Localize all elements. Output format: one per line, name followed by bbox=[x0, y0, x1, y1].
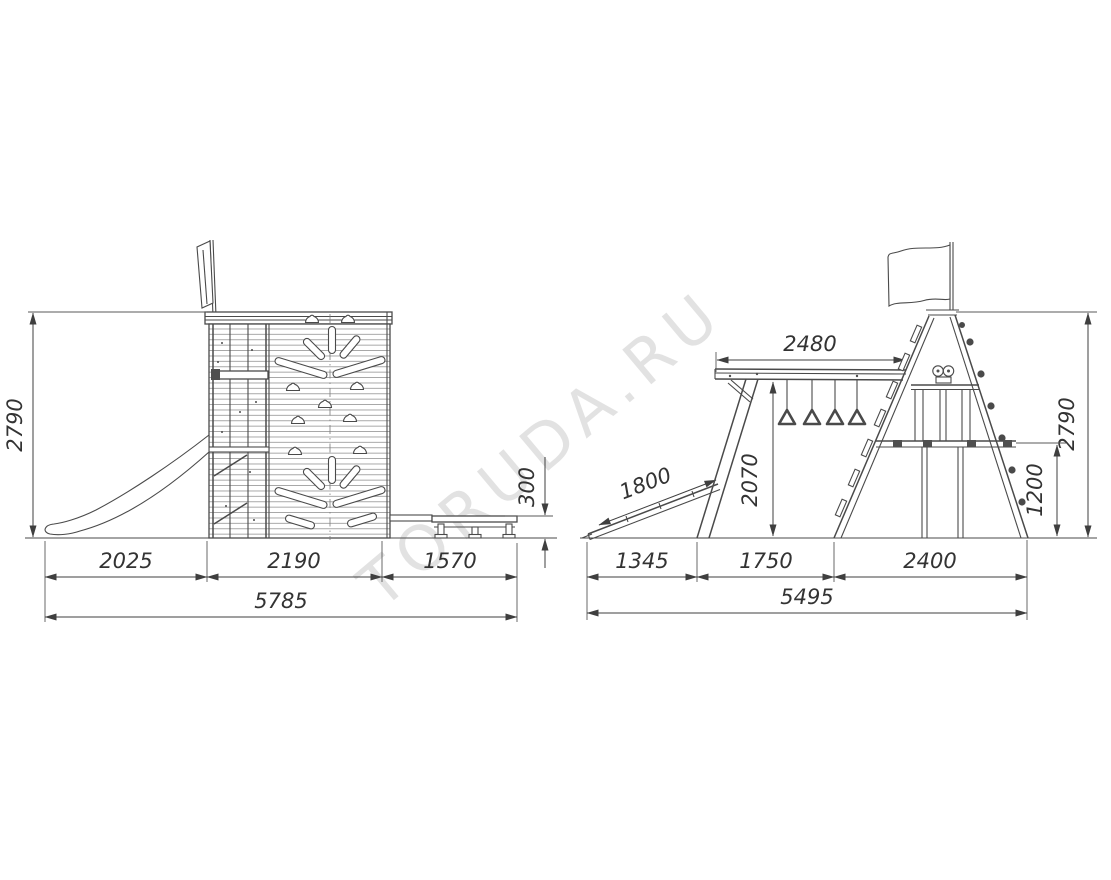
dim-front-bottom: 1345 1750 2400 5495 bbox=[587, 540, 1027, 620]
flag bbox=[888, 242, 953, 310]
svg-text:1800: 1800 bbox=[616, 463, 675, 505]
slide bbox=[45, 435, 209, 535]
dim-front-ramp-base: 1345 bbox=[615, 549, 668, 573]
bench bbox=[432, 516, 517, 538]
lookout-binoculars bbox=[911, 366, 979, 390]
svg-text:1200: 1200 bbox=[1023, 463, 1047, 516]
watermark-text: TORUDA.RU bbox=[344, 275, 738, 622]
svg-text:2790: 2790 bbox=[3, 398, 27, 451]
side-view: 2790 300 2025 2190 1570 5785 bbox=[3, 240, 557, 622]
leg-knobs bbox=[959, 322, 1026, 506]
dim-front-beam-height: 2070 bbox=[738, 382, 773, 536]
handrail bbox=[213, 371, 268, 379]
dim-front-ramp-length: 1800 bbox=[599, 463, 716, 525]
svg-text:2070: 2070 bbox=[738, 453, 762, 506]
dim-front-total: 5495 bbox=[780, 585, 833, 609]
blueprint-page: TORUDA.RU bbox=[0, 0, 1111, 880]
dim-front-mid-span: 1750 bbox=[739, 549, 792, 573]
svg-text:300: 300 bbox=[515, 467, 539, 507]
dim-front-frame-base: 2400 bbox=[903, 549, 956, 573]
leg-cleats bbox=[835, 325, 921, 517]
tower-roof bbox=[205, 312, 392, 324]
front-view: 1800 2480 bbox=[580, 242, 1097, 620]
dim-side-bench-run: 1570 bbox=[423, 549, 476, 573]
platform bbox=[876, 440, 1016, 447]
dim-front-beam-length: 2480 bbox=[716, 332, 905, 372]
balance-beam bbox=[390, 515, 432, 521]
dim-side-height: 2790 bbox=[3, 312, 207, 537]
dim-side-bottom: 2025 2190 1570 5785 bbox=[45, 541, 517, 622]
dim-side-slide-run: 2025 bbox=[99, 549, 152, 573]
blueprint-canvas: TORUDA.RU bbox=[0, 0, 1111, 880]
floor-line bbox=[209, 447, 269, 452]
flag bbox=[197, 240, 216, 316]
monkey-bar-beam bbox=[715, 369, 906, 380]
svg-text:2480: 2480 bbox=[783, 332, 836, 356]
gym-rings bbox=[779, 380, 865, 424]
dim-side-total: 5785 bbox=[254, 589, 307, 613]
dim-side-tower-width: 2190 bbox=[267, 549, 320, 573]
tower bbox=[209, 312, 390, 540]
